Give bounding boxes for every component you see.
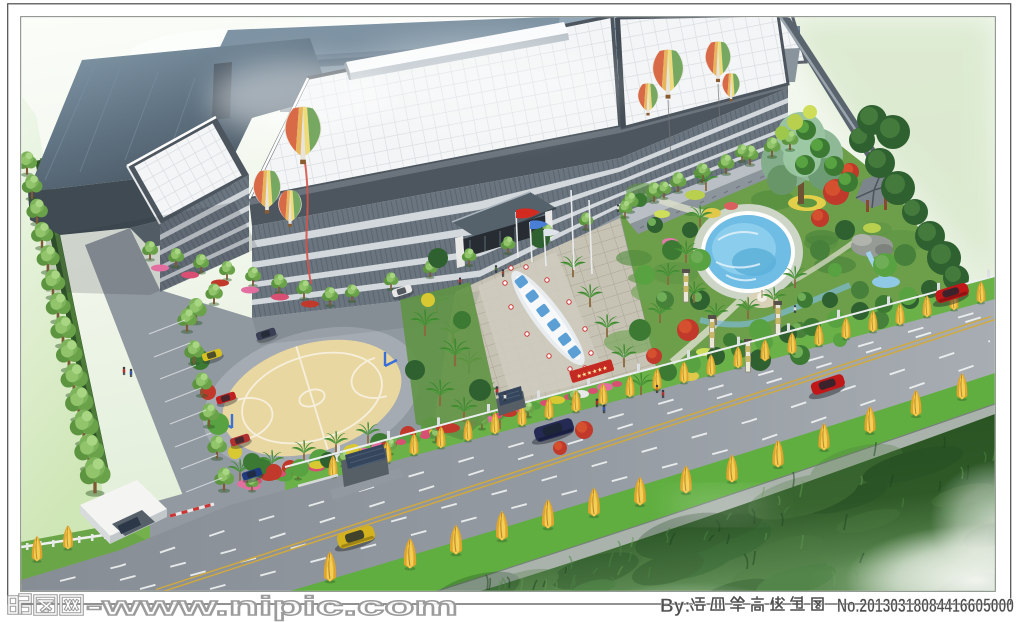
svg-text:-www.nipic.com: -www.nipic.com [86,591,458,621]
svg-text:By:: By: [660,596,691,617]
svg-text:No.20130318084416605000: No.20130318084416605000 [837,596,1014,617]
